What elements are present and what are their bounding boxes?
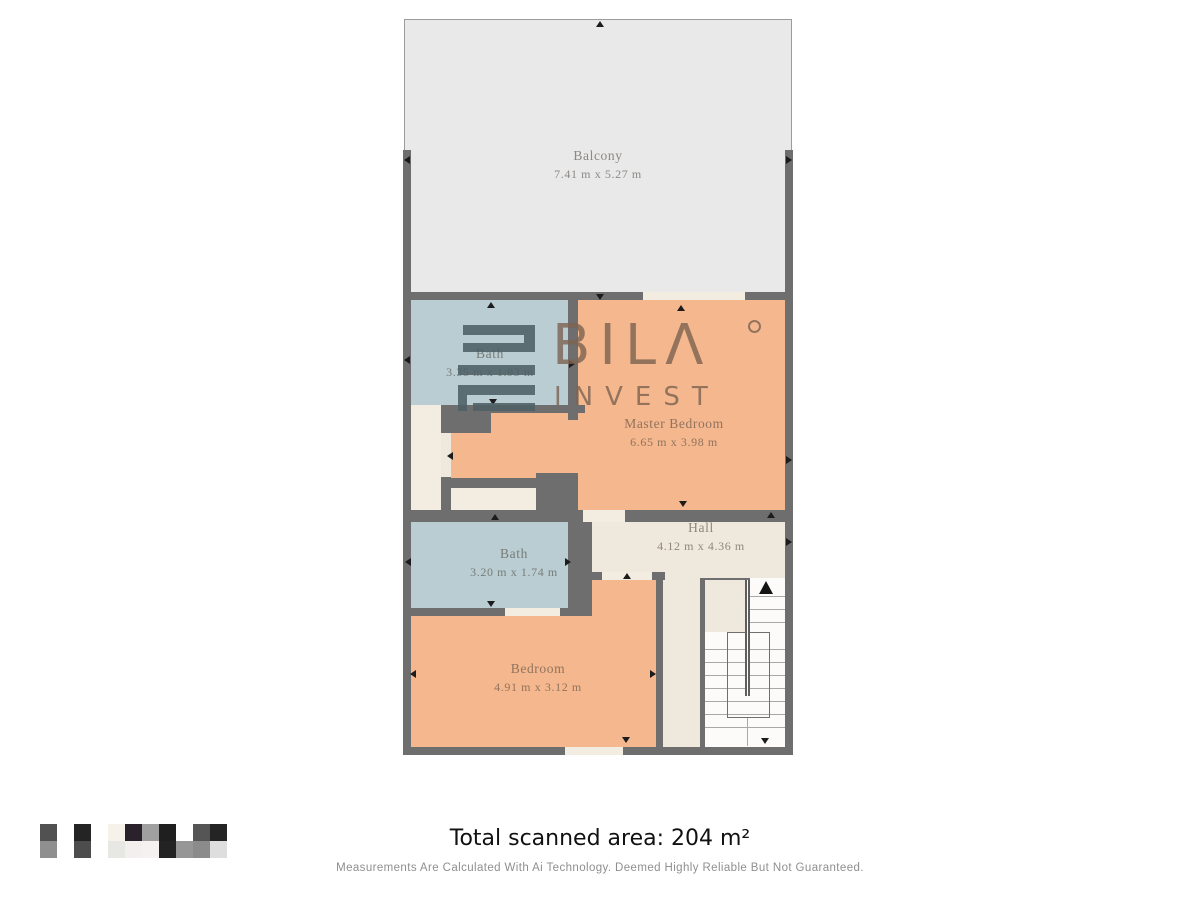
balcony-floor — [404, 19, 792, 292]
stair-centerline — [747, 718, 748, 746]
measure-marker-icon — [622, 737, 630, 743]
measure-marker-icon — [677, 305, 685, 311]
total-area-text: Total scanned area: 204 m² — [0, 826, 1200, 851]
measure-marker-icon — [565, 558, 571, 566]
measure-marker-icon — [491, 514, 499, 520]
bedroom-floor — [592, 580, 658, 616]
measure-marker-icon — [487, 601, 495, 607]
door-opening — [643, 292, 745, 300]
closet-nook — [411, 405, 441, 510]
measure-marker-icon — [447, 452, 453, 460]
door-opening — [565, 747, 623, 755]
disclaimer-text: Measurements Are Calculated With Ai Tech… — [0, 862, 1200, 874]
brand-subtitle: INVEST — [554, 382, 802, 412]
wall — [656, 580, 663, 747]
master-bedroom-floor — [451, 433, 585, 478]
bedroom-floor — [411, 616, 661, 747]
bath-lower-floor — [411, 522, 568, 608]
brand-name: BILΛ — [552, 318, 802, 374]
wall — [441, 413, 491, 433]
measure-marker-icon — [786, 456, 792, 464]
measure-marker-icon — [786, 538, 792, 546]
stair-handrail — [705, 578, 750, 580]
wall — [577, 522, 592, 616]
measure-marker-icon — [786, 156, 792, 164]
measure-marker-icon — [404, 156, 410, 164]
stairs-up-arrow-icon — [759, 581, 773, 594]
closet-nook — [451, 488, 536, 510]
wall — [700, 578, 705, 747]
wall — [536, 473, 578, 510]
bila-invest-wordmark: BILΛ INVEST — [552, 318, 802, 412]
door-opening — [505, 608, 560, 616]
measure-marker-icon — [405, 558, 411, 566]
measure-marker-icon — [623, 573, 631, 579]
measure-marker-icon — [404, 356, 410, 364]
floorplan-page: Balcony 7.41 m x 5.27 m Bath 3.35 m x 1.… — [0, 0, 1200, 900]
measure-marker-icon — [761, 738, 769, 744]
wall — [403, 150, 411, 755]
measure-marker-icon — [650, 670, 656, 678]
door-opening — [583, 510, 625, 522]
measure-marker-icon — [487, 302, 495, 308]
measure-marker-icon — [596, 294, 604, 300]
brand-degree-icon — [748, 320, 761, 333]
wall — [451, 478, 536, 488]
measure-marker-icon — [767, 512, 775, 518]
measure-marker-icon — [679, 501, 687, 507]
stair-landing — [705, 578, 748, 632]
measure-marker-icon — [410, 670, 416, 678]
measure-marker-icon — [596, 21, 604, 27]
wall — [441, 477, 451, 510]
wall — [785, 150, 793, 755]
stair-handrail — [745, 579, 750, 696]
bila-invest-logo-icon — [458, 325, 535, 411]
